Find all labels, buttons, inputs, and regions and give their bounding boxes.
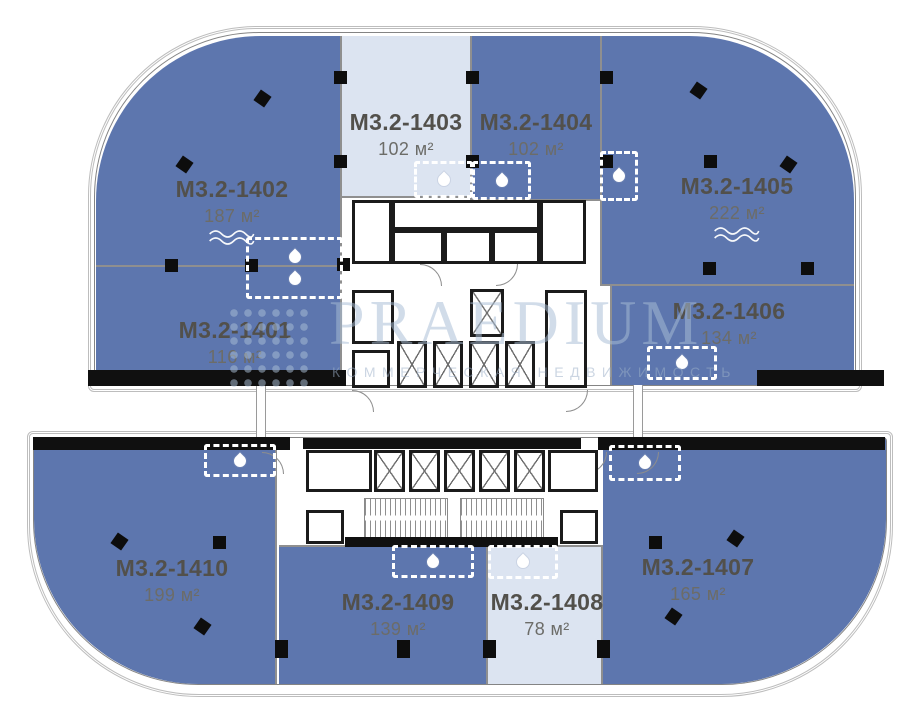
column [397, 640, 410, 658]
wet-point [609, 445, 681, 481]
wet-point [600, 151, 638, 201]
column [597, 640, 610, 658]
water-drop-icon [515, 554, 532, 571]
water-drop-icon [286, 248, 303, 265]
unit-id-text: M3.2-1410 [116, 555, 229, 582]
elevator-shaft [470, 289, 504, 337]
wet-point [414, 161, 473, 198]
unit-area-text: 102 м² [480, 139, 593, 160]
elevator-shaft [479, 450, 510, 492]
unit-id-text: M3.2-1404 [480, 109, 593, 136]
unit-id-text: M3.2-1407 [642, 554, 755, 581]
core-room [306, 510, 344, 544]
unit-label-M3.2-1409: M3.2-1409139 м² [342, 589, 455, 640]
elevator-shaft [469, 341, 499, 388]
core-room [392, 230, 444, 264]
unit-label-M3.2-1403: M3.2-1403102 м² [350, 109, 463, 160]
water-drop-icon [286, 271, 303, 288]
wall-bar [303, 438, 581, 449]
elevator-shaft [505, 341, 535, 388]
corridor-connector [633, 385, 643, 439]
water-waves-icon [208, 229, 256, 246]
column [213, 536, 226, 549]
door-arc [420, 264, 442, 286]
unit-id-text: M3.2-1409 [342, 589, 455, 616]
wall-bar [757, 370, 884, 386]
unit-id-text: M3.2-1405 [681, 173, 794, 200]
water-drop-icon [425, 553, 442, 570]
door-arc [566, 390, 588, 412]
unit-id-text: M3.2-1402 [176, 176, 289, 203]
elevator-shaft [514, 450, 545, 492]
unit-area-text: 134 м² [673, 328, 786, 349]
water-drop-icon [674, 355, 691, 372]
water-drop-icon [493, 172, 510, 189]
column [275, 640, 288, 658]
unit-label-M3.2-1408: M3.2-140878 м² [491, 589, 604, 640]
elevator-shaft [374, 450, 405, 492]
column [466, 71, 479, 84]
floor-plan-canvas: PRAEDIUM КОММЕРЧЕСКАЯ НЕДВИЖИМОСТЬ M3.2-… [0, 0, 918, 704]
unit-label-M3.2-1405: M3.2-1405222 м² [681, 173, 794, 248]
unit-area-text: 187 м² [176, 206, 289, 227]
elevator-shaft [397, 341, 427, 388]
corridor-connector [256, 385, 266, 439]
stair-hatch [460, 498, 544, 538]
elevator-shaft [409, 450, 440, 492]
unit-area-text: 165 м² [642, 584, 755, 605]
core-room [352, 350, 390, 388]
unit-label-M3.2-1406: M3.2-1406134 м² [673, 298, 786, 349]
core-room [548, 450, 598, 492]
unit-area-text: 102 м² [350, 139, 463, 160]
core-room [352, 200, 392, 264]
column [334, 71, 347, 84]
column [483, 640, 496, 658]
core-room [545, 290, 587, 388]
core-room [306, 450, 372, 492]
column [649, 536, 662, 549]
wet-point [647, 346, 717, 380]
unit-area-text: 199 м² [116, 585, 229, 606]
wet-point [392, 545, 474, 578]
wet-point [488, 545, 558, 579]
wet-point [472, 161, 531, 200]
core-room [392, 200, 540, 230]
column [600, 71, 613, 84]
elevator-shaft [433, 341, 463, 388]
water-drop-icon [435, 171, 452, 188]
unit-id-text: M3.2-1406 [673, 298, 786, 325]
unit-id-text: M3.2-1403 [350, 109, 463, 136]
column [703, 262, 716, 275]
unit-area-text: 78 м² [491, 619, 604, 640]
unit-label-M3.2-1410: M3.2-1410199 м² [116, 555, 229, 606]
core-room [444, 230, 492, 264]
water-waves-icon [713, 226, 761, 243]
stair-hatch [364, 498, 448, 538]
unit-area-text: 116 м² [179, 347, 292, 368]
unit-label-M3.2-1404: M3.2-1404102 м² [480, 109, 593, 160]
water-drop-icon [232, 452, 249, 469]
core-room [540, 200, 586, 264]
door-arc [496, 264, 518, 286]
core-room [560, 510, 598, 544]
unit-id-text: M3.2-1408 [491, 589, 604, 616]
unit-label-M3.2-1402: M3.2-1402187 м² [176, 176, 289, 251]
column [165, 259, 178, 272]
column [801, 262, 814, 275]
elevator-shaft [444, 450, 475, 492]
unit-region-M3.2-1405[interactable] [600, 36, 854, 286]
unit-area-text: 139 м² [342, 619, 455, 640]
unit-id-text: M3.2-1401 [179, 317, 292, 344]
unit-label-M3.2-1407: M3.2-1407165 м² [642, 554, 755, 605]
unit-label-M3.2-1401: M3.2-1401116 м² [179, 317, 292, 368]
core-room [352, 290, 394, 344]
water-drop-icon [637, 455, 654, 472]
water-drop-icon [611, 168, 628, 185]
wall-bar [88, 370, 346, 386]
column [334, 155, 347, 168]
column [704, 155, 717, 168]
wet-point [204, 444, 276, 477]
door-arc [352, 390, 374, 412]
core-room [492, 230, 540, 264]
unit-area-text: 222 м² [681, 203, 794, 224]
